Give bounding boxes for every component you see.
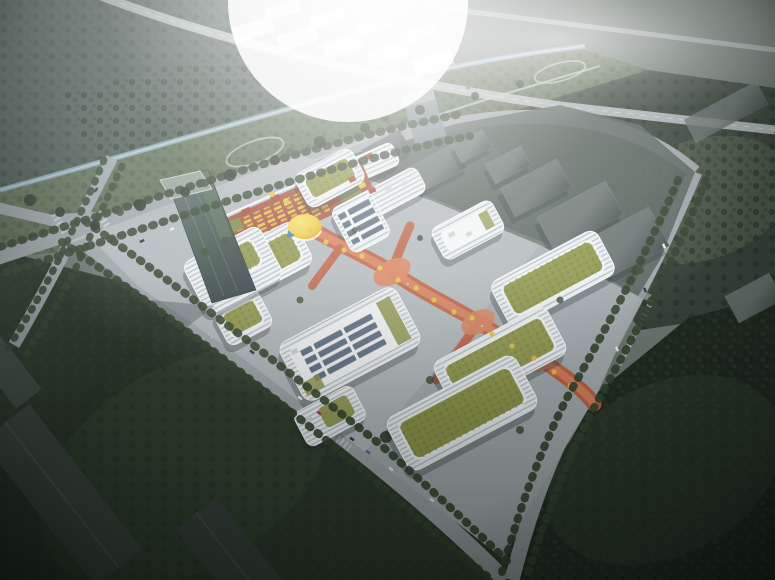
- rendering-canvas: [0, 0, 775, 580]
- lighting: [0, 0, 775, 580]
- aerial-rendering: [0, 0, 775, 580]
